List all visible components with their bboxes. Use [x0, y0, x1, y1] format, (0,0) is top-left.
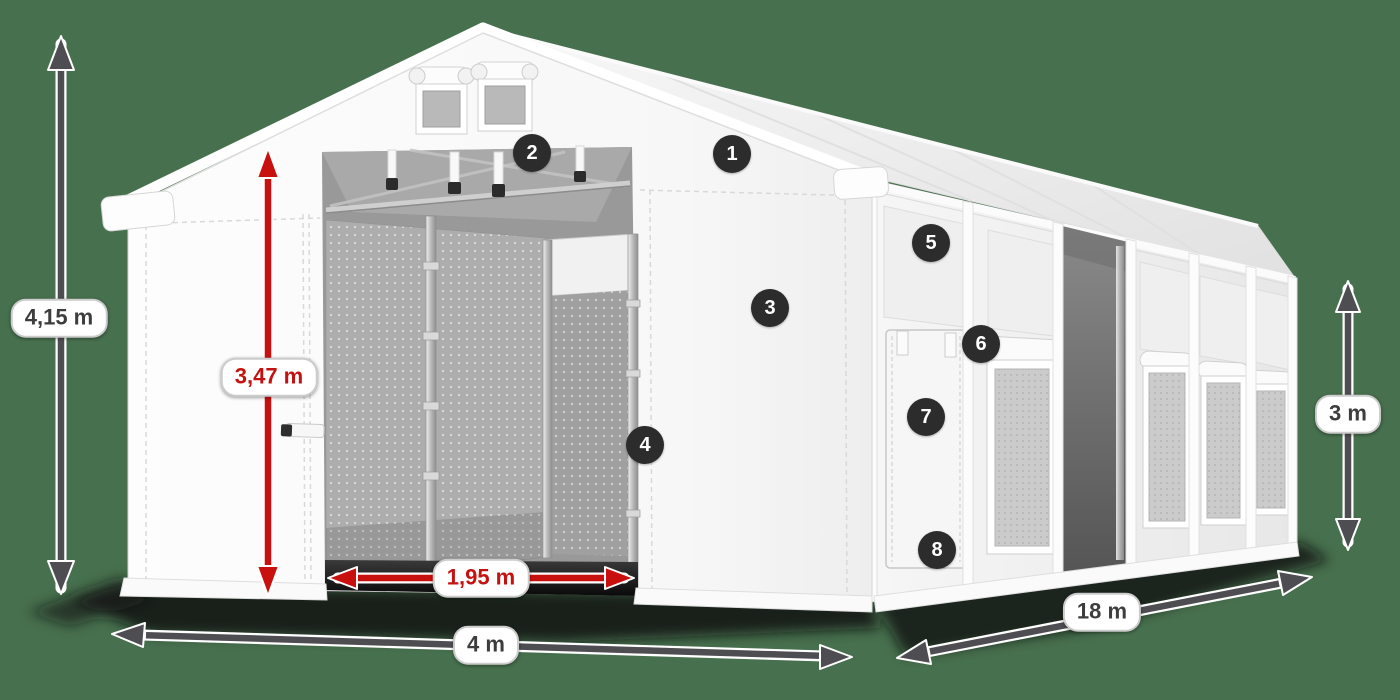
marker-4: 4: [626, 426, 664, 464]
tent-illustration: [0, 0, 1400, 700]
tent-dimension-diagram: 4,15 m 3,47 m 1,95 m 4 m 18 m 3 m 1 2 3 …: [0, 0, 1400, 700]
side-door: [886, 330, 966, 568]
marker-6: 6: [962, 325, 1000, 363]
eaves-cap-left: [100, 190, 175, 231]
interior-portal-header: [545, 234, 636, 296]
width-label: 4 m: [453, 626, 519, 665]
length-label: 18 m: [1063, 593, 1141, 632]
frame-pole: [628, 234, 638, 594]
entrance-height-label: 3,47 m: [221, 358, 318, 397]
side-window: [1198, 361, 1249, 525]
entrance-opening: [322, 147, 640, 596]
marker-1: 1: [713, 135, 751, 173]
gable-window-right: [471, 62, 538, 131]
total-height-label: 4,15 m: [11, 299, 108, 338]
interior-portal-mesh: [548, 290, 633, 556]
side-window: [982, 336, 1061, 554]
side-height-label: 3 m: [1315, 395, 1381, 434]
door-handle: [281, 423, 324, 437]
gable-window-left: [409, 67, 474, 134]
side-window: [1140, 351, 1195, 528]
marker-7: 7: [907, 398, 945, 436]
marker-3: 3: [751, 289, 789, 327]
eaves-cap-right: [833, 166, 889, 200]
entrance-width-label: 1,95 m: [433, 559, 530, 598]
side-open-bay: [1062, 226, 1128, 574]
marker-2: 2: [513, 134, 551, 172]
frame-pole: [543, 240, 552, 558]
marker-8: 8: [918, 531, 956, 569]
marker-5: 5: [912, 224, 950, 262]
